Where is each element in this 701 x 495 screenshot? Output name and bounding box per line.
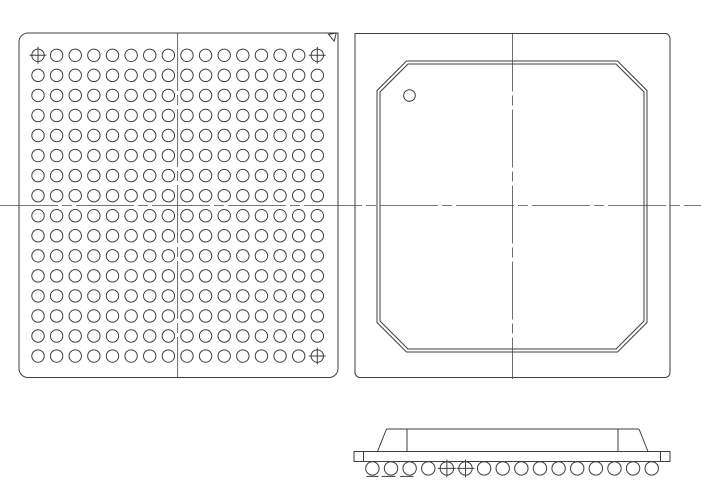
solder-ball bbox=[274, 290, 286, 302]
solder-ball bbox=[292, 69, 304, 81]
solder-ball bbox=[237, 49, 249, 61]
solder-ball bbox=[274, 129, 286, 141]
solder-ball bbox=[50, 210, 62, 222]
solder-ball bbox=[50, 189, 62, 201]
solder-ball bbox=[32, 310, 44, 322]
solder-ball bbox=[162, 169, 174, 181]
side-view-solder-ball bbox=[533, 462, 546, 475]
side-view-solder-ball bbox=[477, 462, 490, 475]
solder-ball bbox=[50, 49, 62, 61]
solder-ball bbox=[69, 290, 81, 302]
solder-ball bbox=[162, 69, 174, 81]
side-view-solder-ball bbox=[608, 462, 621, 475]
solder-ball bbox=[162, 330, 174, 342]
solder-ball bbox=[311, 129, 323, 141]
mold-cap-octagon-outer bbox=[377, 61, 647, 352]
solder-ball bbox=[32, 330, 44, 342]
solder-ball bbox=[32, 230, 44, 242]
solder-ball bbox=[106, 270, 118, 282]
solder-ball bbox=[218, 270, 230, 282]
solder-ball bbox=[69, 350, 81, 362]
solder-ball bbox=[255, 250, 267, 262]
solder-ball bbox=[125, 290, 137, 302]
solder-ball bbox=[218, 189, 230, 201]
solder-ball bbox=[69, 49, 81, 61]
solder-ball bbox=[292, 129, 304, 141]
solder-ball bbox=[181, 49, 193, 61]
solder-ball bbox=[32, 89, 44, 101]
solder-ball bbox=[181, 129, 193, 141]
solder-ball bbox=[181, 109, 193, 121]
side-view-solder-ball bbox=[626, 462, 639, 475]
side-view-solder-ball bbox=[515, 462, 528, 475]
solder-ball bbox=[255, 350, 267, 362]
solder-ball bbox=[69, 149, 81, 161]
solder-ball bbox=[311, 189, 323, 201]
side-view-solder-ball bbox=[384, 462, 397, 475]
side-view-solder-ball bbox=[571, 462, 584, 475]
solder-ball bbox=[125, 49, 137, 61]
solder-ball bbox=[32, 69, 44, 81]
solder-ball bbox=[125, 230, 137, 242]
solder-ball bbox=[218, 129, 230, 141]
solder-ball bbox=[144, 290, 156, 302]
solder-ball bbox=[162, 109, 174, 121]
solder-ball bbox=[311, 270, 323, 282]
solder-ball bbox=[237, 350, 249, 362]
solder-ball bbox=[125, 69, 137, 81]
top-view bbox=[355, 34, 670, 380]
solder-ball bbox=[32, 129, 44, 141]
solder-ball bbox=[218, 169, 230, 181]
solder-ball bbox=[199, 69, 211, 81]
solder-ball bbox=[274, 210, 286, 222]
solder-ball bbox=[88, 310, 100, 322]
solder-ball bbox=[255, 149, 267, 161]
solder-ball bbox=[144, 230, 156, 242]
solder-ball bbox=[88, 69, 100, 81]
solder-ball bbox=[199, 109, 211, 121]
solder-ball bbox=[274, 270, 286, 282]
solder-ball bbox=[311, 169, 323, 181]
solder-ball bbox=[162, 270, 174, 282]
side-view bbox=[354, 429, 670, 477]
solder-ball bbox=[311, 109, 323, 121]
side-view-solder-ball bbox=[403, 462, 416, 475]
solder-ball bbox=[255, 310, 267, 322]
solder-ball bbox=[50, 149, 62, 161]
solder-ball bbox=[181, 290, 193, 302]
solder-ball bbox=[237, 270, 249, 282]
solder-ball bbox=[162, 89, 174, 101]
solder-ball bbox=[274, 149, 286, 161]
pin1-dot bbox=[404, 90, 416, 102]
solder-ball bbox=[255, 49, 267, 61]
solder-ball bbox=[237, 169, 249, 181]
solder-ball bbox=[162, 230, 174, 242]
solder-ball bbox=[274, 169, 286, 181]
solder-ball bbox=[32, 290, 44, 302]
solder-ball bbox=[88, 89, 100, 101]
solder-ball bbox=[199, 149, 211, 161]
side-view-solder-ball bbox=[645, 462, 658, 475]
solder-ball bbox=[237, 250, 249, 262]
side-view-solder-ball bbox=[422, 462, 435, 475]
solder-ball bbox=[199, 210, 211, 222]
solder-ball bbox=[88, 189, 100, 201]
solder-ball bbox=[218, 49, 230, 61]
solder-ball bbox=[292, 189, 304, 201]
solder-ball bbox=[292, 310, 304, 322]
solder-ball bbox=[237, 210, 249, 222]
package-outline-drawing-svg bbox=[0, 0, 701, 495]
solder-ball bbox=[144, 270, 156, 282]
solder-ball bbox=[311, 89, 323, 101]
solder-ball bbox=[106, 350, 118, 362]
solder-ball bbox=[181, 210, 193, 222]
solder-ball bbox=[162, 189, 174, 201]
solder-ball bbox=[50, 250, 62, 262]
solder-ball bbox=[88, 270, 100, 282]
solder-ball bbox=[162, 49, 174, 61]
solder-ball bbox=[69, 310, 81, 322]
solder-ball bbox=[255, 69, 267, 81]
solder-ball bbox=[125, 330, 137, 342]
solder-ball bbox=[274, 69, 286, 81]
solder-ball bbox=[88, 49, 100, 61]
solder-ball bbox=[50, 69, 62, 81]
solder-ball bbox=[199, 230, 211, 242]
solder-ball bbox=[69, 250, 81, 262]
solder-ball bbox=[106, 250, 118, 262]
solder-ball bbox=[181, 330, 193, 342]
solder-ball bbox=[106, 89, 118, 101]
solder-ball bbox=[255, 290, 267, 302]
solder-ball bbox=[88, 330, 100, 342]
solder-ball bbox=[181, 149, 193, 161]
solder-ball bbox=[237, 310, 249, 322]
solder-ball bbox=[237, 69, 249, 81]
solder-ball bbox=[106, 109, 118, 121]
solder-ball bbox=[50, 169, 62, 181]
solder-ball bbox=[106, 169, 118, 181]
solder-ball bbox=[32, 169, 44, 181]
solder-ball bbox=[292, 230, 304, 242]
solder-ball bbox=[274, 350, 286, 362]
solder-ball bbox=[199, 189, 211, 201]
solder-ball bbox=[292, 330, 304, 342]
solder-ball bbox=[181, 230, 193, 242]
solder-ball bbox=[106, 189, 118, 201]
solder-ball bbox=[50, 270, 62, 282]
solder-ball bbox=[69, 270, 81, 282]
side-view-solder-ball bbox=[366, 462, 379, 475]
solder-ball bbox=[292, 109, 304, 121]
solder-ball bbox=[218, 109, 230, 121]
solder-ball bbox=[162, 149, 174, 161]
solder-ball bbox=[69, 69, 81, 81]
solder-ball bbox=[311, 250, 323, 262]
solder-ball bbox=[69, 129, 81, 141]
solder-ball bbox=[144, 89, 156, 101]
solder-ball bbox=[181, 69, 193, 81]
solder-ball bbox=[144, 330, 156, 342]
solder-ball bbox=[237, 330, 249, 342]
solder-ball bbox=[199, 49, 211, 61]
solder-ball bbox=[144, 149, 156, 161]
solder-ball bbox=[32, 109, 44, 121]
solder-ball bbox=[181, 169, 193, 181]
solder-ball bbox=[311, 210, 323, 222]
solder-ball bbox=[106, 290, 118, 302]
solder-ball bbox=[181, 310, 193, 322]
solder-ball bbox=[237, 290, 249, 302]
solder-ball bbox=[199, 89, 211, 101]
solder-ball bbox=[181, 350, 193, 362]
solder-ball bbox=[162, 310, 174, 322]
solder-ball bbox=[218, 350, 230, 362]
solder-ball bbox=[69, 169, 81, 181]
solder-ball bbox=[50, 230, 62, 242]
solder-ball bbox=[218, 290, 230, 302]
solder-ball bbox=[69, 330, 81, 342]
solder-ball bbox=[274, 189, 286, 201]
mold-cap-slant-edge bbox=[639, 429, 648, 452]
solder-ball bbox=[199, 330, 211, 342]
solder-ball bbox=[218, 210, 230, 222]
solder-ball bbox=[199, 169, 211, 181]
solder-ball bbox=[32, 350, 44, 362]
solder-ball bbox=[162, 250, 174, 262]
solder-ball bbox=[218, 89, 230, 101]
solder-ball bbox=[69, 189, 81, 201]
solder-ball bbox=[255, 109, 267, 121]
solder-ball bbox=[88, 290, 100, 302]
solder-ball bbox=[162, 129, 174, 141]
solder-ball bbox=[125, 250, 137, 262]
solder-ball bbox=[292, 49, 304, 61]
solder-ball bbox=[292, 169, 304, 181]
solder-ball bbox=[144, 69, 156, 81]
solder-ball bbox=[218, 330, 230, 342]
solder-ball bbox=[292, 270, 304, 282]
solder-ball bbox=[274, 230, 286, 242]
solder-ball bbox=[125, 350, 137, 362]
solder-ball bbox=[218, 250, 230, 262]
side-view-substrate bbox=[354, 452, 670, 462]
solder-ball bbox=[144, 310, 156, 322]
solder-ball bbox=[106, 149, 118, 161]
solder-ball bbox=[274, 310, 286, 322]
solder-ball bbox=[106, 310, 118, 322]
solder-ball bbox=[199, 270, 211, 282]
solder-ball bbox=[199, 290, 211, 302]
solder-ball bbox=[144, 169, 156, 181]
solder-ball bbox=[274, 49, 286, 61]
solder-ball bbox=[125, 129, 137, 141]
solder-ball bbox=[50, 310, 62, 322]
solder-ball bbox=[292, 250, 304, 262]
solder-ball bbox=[311, 69, 323, 81]
solder-ball bbox=[311, 330, 323, 342]
solder-ball bbox=[199, 129, 211, 141]
solder-ball bbox=[144, 129, 156, 141]
solder-ball bbox=[274, 250, 286, 262]
solder-ball bbox=[237, 230, 249, 242]
solder-ball bbox=[125, 109, 137, 121]
solder-ball bbox=[311, 290, 323, 302]
solder-ball bbox=[50, 109, 62, 121]
solder-ball bbox=[144, 250, 156, 262]
solder-ball bbox=[50, 330, 62, 342]
solder-ball bbox=[199, 250, 211, 262]
solder-ball bbox=[199, 350, 211, 362]
solder-ball bbox=[255, 169, 267, 181]
solder-ball bbox=[218, 149, 230, 161]
side-view-solder-ball bbox=[496, 462, 509, 475]
solder-ball bbox=[88, 210, 100, 222]
solder-ball bbox=[50, 350, 62, 362]
solder-ball bbox=[106, 230, 118, 242]
solder-ball bbox=[50, 129, 62, 141]
solder-ball bbox=[125, 270, 137, 282]
solder-ball bbox=[311, 310, 323, 322]
solder-ball bbox=[255, 270, 267, 282]
solder-ball bbox=[292, 350, 304, 362]
solder-ball bbox=[88, 350, 100, 362]
solder-ball bbox=[255, 210, 267, 222]
solder-ball bbox=[274, 330, 286, 342]
solder-ball bbox=[237, 189, 249, 201]
solder-ball bbox=[237, 109, 249, 121]
mold-cap-octagon-inner bbox=[380, 64, 644, 349]
solder-ball bbox=[106, 49, 118, 61]
solder-ball bbox=[125, 310, 137, 322]
solder-ball bbox=[311, 149, 323, 161]
solder-ball bbox=[69, 230, 81, 242]
solder-ball bbox=[88, 149, 100, 161]
solder-ball bbox=[69, 89, 81, 101]
bga-package-drawing bbox=[0, 0, 701, 495]
solder-ball bbox=[32, 189, 44, 201]
solder-ball bbox=[255, 330, 267, 342]
solder-ball bbox=[181, 189, 193, 201]
solder-ball bbox=[255, 189, 267, 201]
solder-ball bbox=[32, 270, 44, 282]
solder-ball bbox=[125, 89, 137, 101]
solder-ball bbox=[88, 230, 100, 242]
solder-ball bbox=[88, 250, 100, 262]
solder-ball bbox=[292, 89, 304, 101]
solder-ball bbox=[125, 169, 137, 181]
solder-ball bbox=[32, 149, 44, 161]
pin1-triangle-marker bbox=[329, 33, 337, 41]
solder-ball bbox=[32, 210, 44, 222]
solder-ball bbox=[311, 230, 323, 242]
solder-ball bbox=[88, 109, 100, 121]
solder-ball bbox=[162, 290, 174, 302]
solder-ball bbox=[125, 149, 137, 161]
solder-ball bbox=[88, 129, 100, 141]
solder-ball bbox=[181, 250, 193, 262]
solder-ball bbox=[106, 129, 118, 141]
solder-ball bbox=[237, 89, 249, 101]
solder-ball bbox=[144, 109, 156, 121]
side-view-solder-ball bbox=[589, 462, 602, 475]
solder-ball bbox=[125, 189, 137, 201]
solder-ball bbox=[125, 210, 137, 222]
solder-ball bbox=[69, 210, 81, 222]
solder-ball bbox=[255, 89, 267, 101]
solder-ball bbox=[144, 350, 156, 362]
mold-cap-slant-edge bbox=[378, 429, 387, 452]
solder-ball bbox=[106, 69, 118, 81]
solder-ball bbox=[292, 290, 304, 302]
solder-ball bbox=[181, 89, 193, 101]
solder-ball bbox=[199, 310, 211, 322]
solder-ball bbox=[181, 270, 193, 282]
solder-ball bbox=[88, 169, 100, 181]
solder-ball bbox=[218, 230, 230, 242]
solder-ball bbox=[255, 129, 267, 141]
side-view-solder-ball bbox=[552, 462, 565, 475]
solder-ball bbox=[292, 149, 304, 161]
solder-ball bbox=[106, 330, 118, 342]
solder-ball bbox=[162, 350, 174, 362]
solder-ball bbox=[255, 230, 267, 242]
solder-ball bbox=[144, 49, 156, 61]
solder-ball bbox=[50, 89, 62, 101]
solder-ball bbox=[106, 210, 118, 222]
solder-ball bbox=[237, 129, 249, 141]
solder-ball bbox=[50, 290, 62, 302]
solder-ball bbox=[218, 69, 230, 81]
solder-ball bbox=[274, 89, 286, 101]
solder-ball bbox=[274, 109, 286, 121]
solder-ball bbox=[32, 250, 44, 262]
solder-ball bbox=[237, 149, 249, 161]
solder-ball bbox=[218, 310, 230, 322]
solder-ball bbox=[144, 189, 156, 201]
solder-ball bbox=[162, 210, 174, 222]
solder-ball bbox=[144, 210, 156, 222]
solder-ball bbox=[69, 109, 81, 121]
solder-ball bbox=[292, 210, 304, 222]
